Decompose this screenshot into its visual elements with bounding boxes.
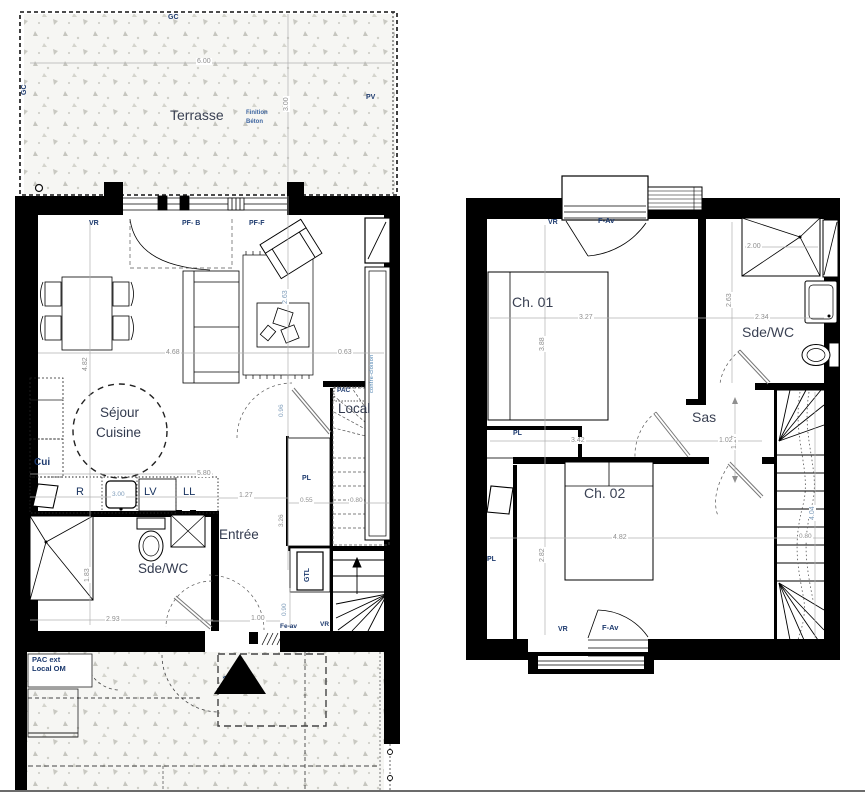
gf-exterior (27, 652, 393, 790)
uf-bath-width-dim: 2.34 (754, 314, 770, 321)
cui-label: Cui (34, 458, 50, 468)
contre-cloison-label: contre-cloison (370, 355, 376, 393)
entrance-triangle-marker (214, 654, 266, 694)
ch01-label: Ch. 01 (512, 295, 553, 309)
faucet-dot (119, 507, 122, 510)
gtl-label: GTL (304, 568, 311, 582)
sas-width-dim: 1.02 (718, 437, 734, 444)
cuisine-label: Cuisine (96, 426, 141, 440)
sofa (183, 271, 239, 383)
window-pane-symbol-uf (487, 486, 513, 514)
living-mid-dim: 2.63 (282, 289, 289, 305)
pl-dim: 0.55 (299, 498, 314, 505)
ch01-width-dim: 3.27 (578, 314, 594, 321)
uf-stairs-height-dim: 4.04 (809, 505, 816, 521)
door-width-dim: 1.00 (250, 615, 266, 622)
uf-fav-top-label: F-Av (598, 217, 614, 225)
uf-fav-bottom-label: F-Av (602, 624, 618, 632)
toilet-bowl-uf (802, 345, 830, 366)
ch02-width-dim: 4.82 (612, 534, 628, 541)
entree-label: Entrée (219, 528, 259, 542)
finition-label-1: Finition (246, 110, 268, 116)
pv-label: PV (366, 94, 375, 101)
upper-floor-plan (466, 176, 840, 674)
uf-pl-top-label: PL (513, 430, 522, 437)
uf-vr-bottom-label: VR (558, 626, 568, 633)
coffee-table (257, 303, 309, 347)
gf-stairs (333, 558, 389, 631)
sink-dim: 3.00 (111, 492, 126, 499)
ch02-label: Ch. 02 (584, 486, 625, 500)
living-width-dim: 4.68 (165, 349, 181, 356)
gc-left-label: GC (21, 85, 28, 96)
stair-direction-arrow (353, 558, 361, 567)
closet-dim-v2: 3.26 (279, 513, 286, 528)
terrace-width-dim: 6.00 (196, 58, 212, 65)
kitchen-width-dim: 5.80 (196, 470, 212, 477)
entry-side-dim: 0.90 (282, 602, 289, 617)
vanity (805, 281, 837, 323)
pl-label: PL (302, 475, 311, 482)
feav-label: Fe-av (280, 624, 297, 631)
sejour-label: Séjour (100, 406, 139, 420)
dishwasher-label: LV (144, 487, 157, 498)
vr-bottom-label: VR (320, 622, 329, 629)
drain-symbol (36, 185, 43, 192)
gf-french-door (123, 196, 287, 210)
entrance-threshold (249, 632, 283, 645)
terrace-depth-dim: 3.00 (283, 96, 290, 112)
entry-top-dim: 1.27 (238, 492, 254, 499)
terrace-label: Terrasse (170, 108, 224, 122)
window-pane-symbol (33, 484, 58, 508)
ch02-top-dim: 3.42 (570, 437, 586, 444)
pac-ext-label-1: PAC ext (32, 656, 60, 664)
stair-width-dim: 0.80 (349, 498, 364, 505)
shower (30, 516, 93, 600)
toilet-bowl (139, 531, 163, 561)
uf-pl-side-label: PL (487, 556, 496, 563)
washer-label: LL (183, 487, 195, 498)
plan-drawing (0, 0, 865, 800)
uf-stairs (777, 390, 824, 640)
uf-bath-height-dim: 2.63 (726, 292, 733, 308)
uf-stairs-width-dim: 0.80 (798, 534, 813, 541)
gc-top-label: GC (168, 14, 179, 21)
sas-label: Sas (692, 410, 716, 424)
uf-bath-label: Sde/WC (742, 325, 794, 339)
bed-ch02 (565, 462, 653, 580)
bath-width-dim: 2.93 (105, 616, 121, 623)
shower-dim: 2.00 (746, 243, 762, 250)
toilet-tank (137, 518, 165, 529)
living-right-dim: 0.63 (337, 349, 353, 356)
pac-ext-label-2: Local OM (32, 665, 66, 673)
local-label: Local (338, 402, 370, 416)
fridge-label: R (76, 487, 84, 498)
closet-dim-v1: 0.96 (279, 403, 286, 418)
bath-height-dim: 1.83 (84, 567, 91, 583)
pfb-label: PF- B (182, 220, 200, 227)
pff-label: PF-F (249, 220, 265, 227)
uf-vr-top-label: VR (548, 219, 558, 226)
vr-top-label: VR (89, 220, 99, 227)
ch02-height-dim: 2.82 (539, 547, 546, 563)
pac-label: PAC (337, 388, 350, 395)
terrace (20, 12, 397, 196)
finition-label-2: Béton (246, 119, 263, 125)
gf-bath-label: Sde/WC (138, 562, 188, 576)
living-height-dim: 4.82 (82, 356, 89, 372)
ch01-height-dim: 3.88 (539, 336, 546, 352)
dining-table (41, 277, 134, 350)
floor-plan-canvas: GC GC PV Terrasse Finition Béton 6.00 3.… (0, 0, 865, 800)
